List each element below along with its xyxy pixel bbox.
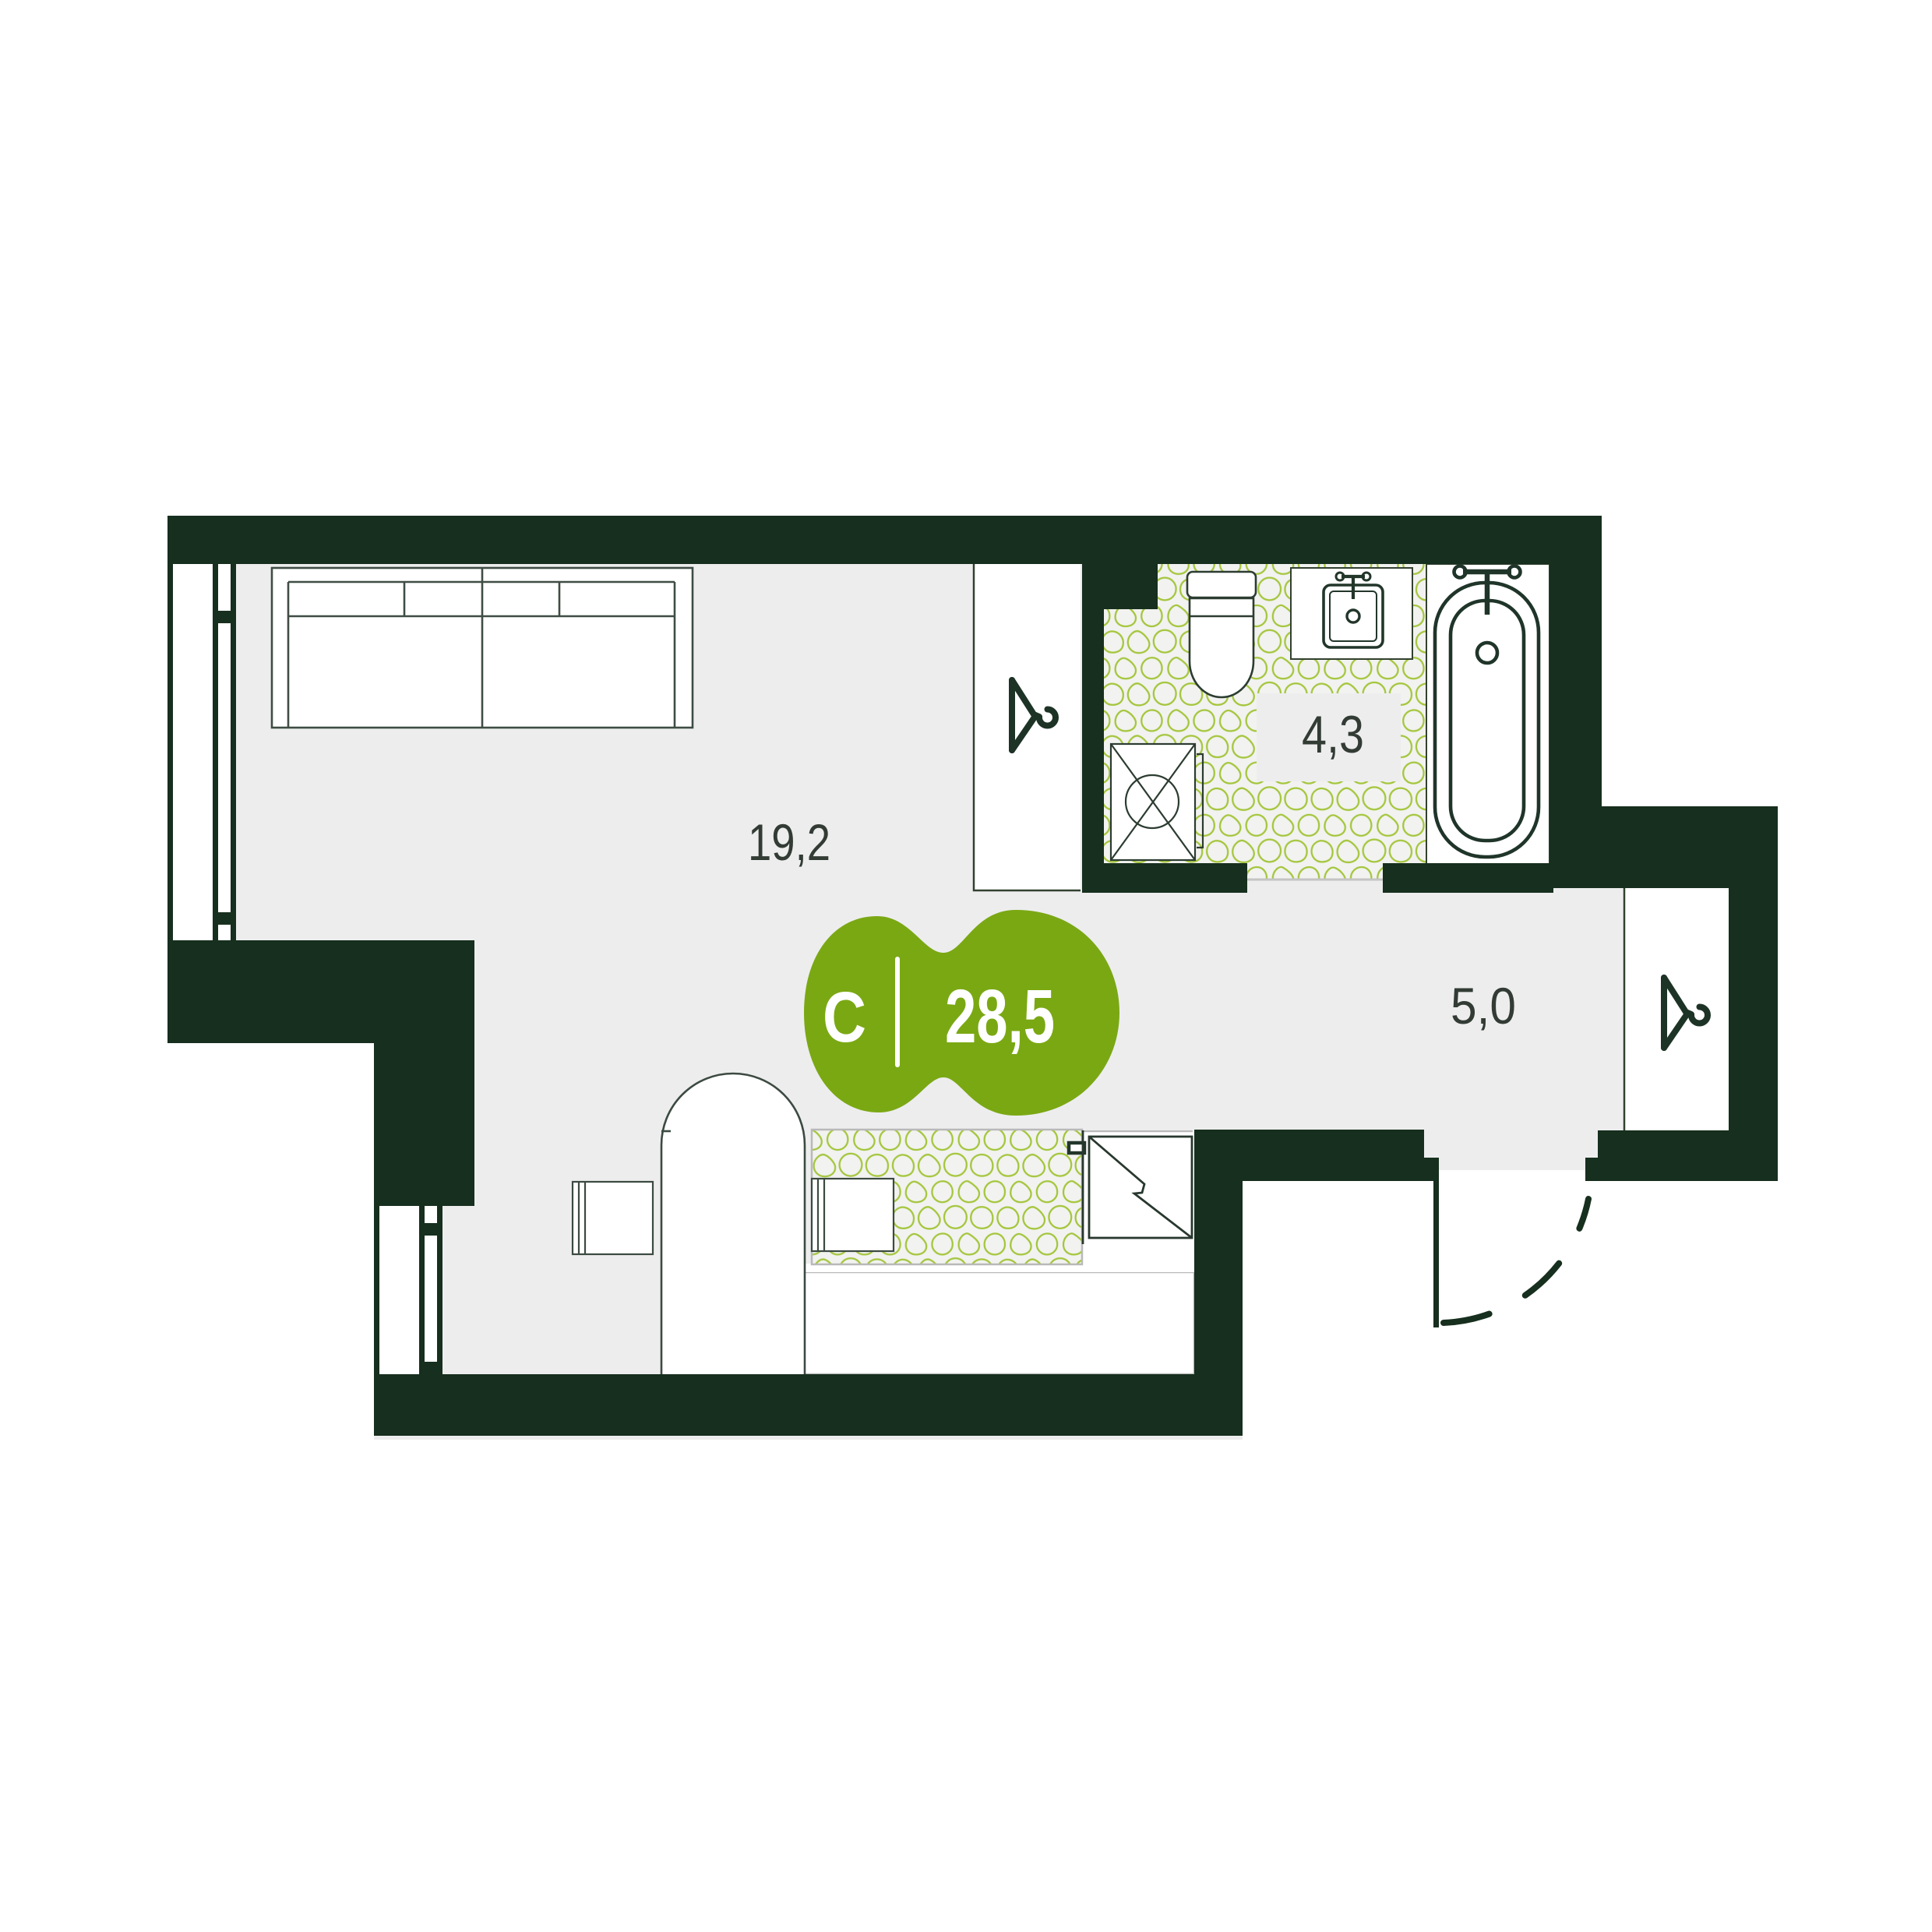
svg-text:19,2: 19,2 (748, 813, 830, 871)
svg-text:С: С (823, 978, 866, 1057)
svg-text:4,3: 4,3 (1302, 705, 1364, 764)
svg-text:28,5: 28,5 (945, 974, 1055, 1059)
svg-text:5,0: 5,0 (1451, 977, 1516, 1035)
